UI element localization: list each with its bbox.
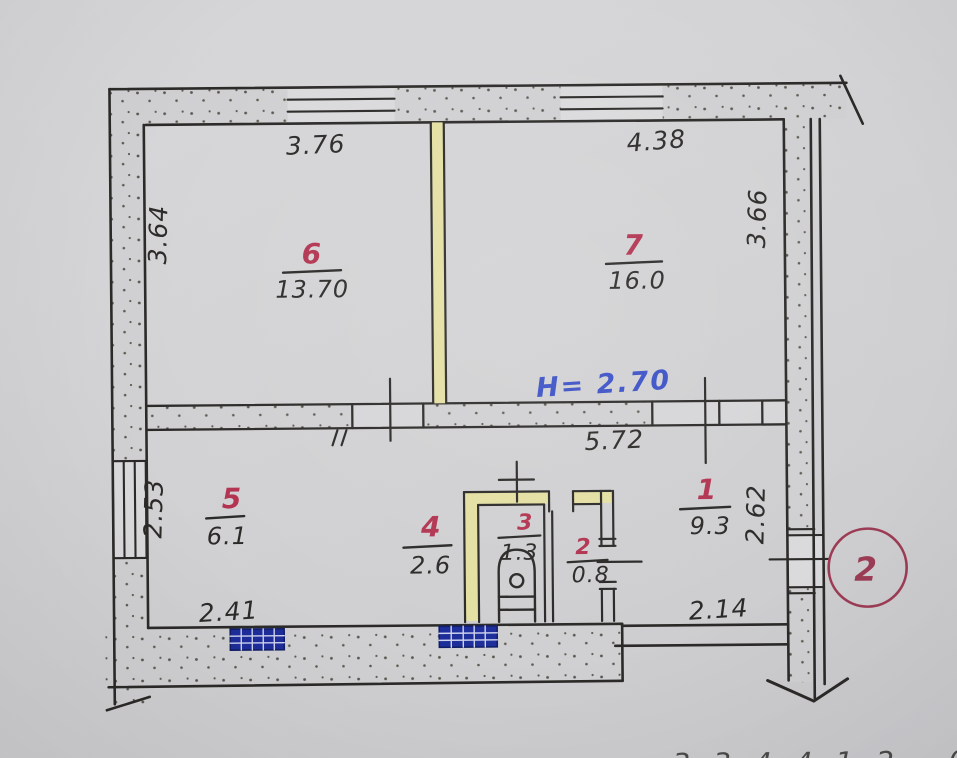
svg-text:13.70: 13.70 xyxy=(275,275,349,304)
svg-text:3: 3 xyxy=(517,511,534,536)
radiator-left-icon xyxy=(230,629,284,650)
room-label-4: 4 2.6 xyxy=(403,510,452,579)
dim-hall-width: 5.72 xyxy=(584,425,645,457)
svg-text:2.6: 2.6 xyxy=(410,551,451,579)
svg-text:4: 4 xyxy=(420,510,442,543)
partition-room6-room7 xyxy=(431,122,446,403)
edge-cutoff-text: 3 3 4 4 1 2 · 0 7 xyxy=(672,744,957,758)
svg-text:1: 1 xyxy=(697,473,718,506)
dim-room5-width: 2.41 xyxy=(198,595,259,628)
dim-room1-depth: 2.62 xyxy=(740,484,771,544)
svg-text:2: 2 xyxy=(575,535,592,560)
svg-text:7: 7 xyxy=(623,229,644,262)
svg-text:9.3: 9.3 xyxy=(690,512,731,540)
svg-text:1.3: 1.3 xyxy=(500,540,538,565)
room-label-7: 7 16.0 xyxy=(606,228,666,295)
room-label-3: 3 1.3 xyxy=(498,510,540,565)
dim-room5-depth: 2.53 xyxy=(138,478,169,538)
svg-text:2: 2 xyxy=(854,550,877,589)
sheet-marker-circle: 2 xyxy=(828,528,907,607)
radiator-right-icon xyxy=(439,626,497,648)
room-label-1: 1 9.3 xyxy=(680,473,731,540)
room-label-6: 6 13.70 xyxy=(275,237,349,304)
svg-text:5: 5 xyxy=(222,482,243,515)
dim-room7-width: 4.38 xyxy=(625,124,687,158)
floorplan-photo: 6 13.70 7 16.0 5 6.1 4 2.6 3 xyxy=(0,0,957,758)
dim-room6-width: 3.76 xyxy=(285,129,346,161)
floor-plan-svg: 6 13.70 7 16.0 5 6.1 4 2.6 3 xyxy=(0,0,957,758)
wc-block-walls xyxy=(464,491,642,623)
dim-room1-width: 2.14 xyxy=(688,593,749,626)
dim-room6-depth: 3.64 xyxy=(143,204,174,264)
svg-text:16.0: 16.0 xyxy=(608,266,666,295)
ceiling-height-note: H= 2.70 xyxy=(535,365,672,404)
svg-text:6: 6 xyxy=(302,237,323,270)
room-label-5: 5 6.1 xyxy=(206,482,248,550)
svg-text:6.1: 6.1 xyxy=(207,522,248,550)
svg-text:0.8: 0.8 xyxy=(572,563,610,588)
dim-room7-depth: 3.66 xyxy=(742,188,773,248)
